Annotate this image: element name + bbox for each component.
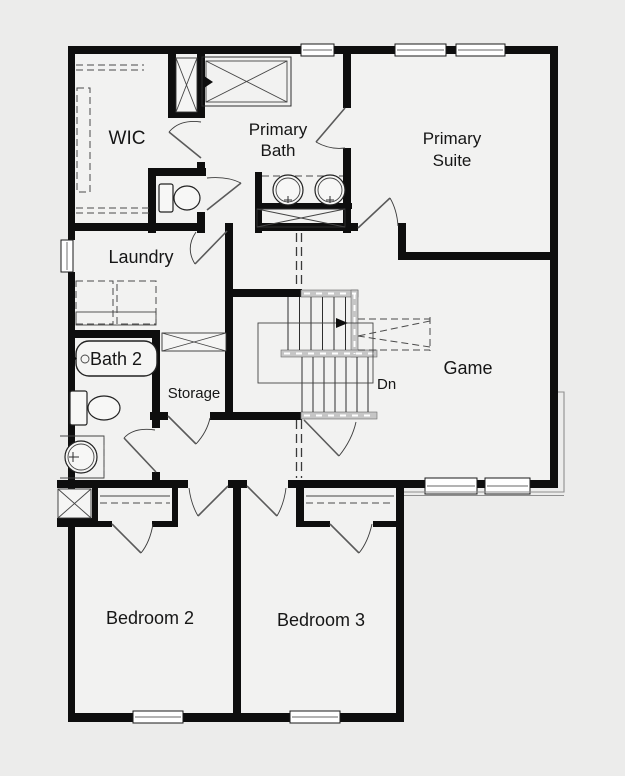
label-storage: Storage	[168, 385, 221, 402]
left-chase-icon	[58, 489, 91, 518]
label-primary-suite-2: Suite	[433, 151, 472, 170]
label-stairs-down: Dn	[377, 376, 396, 393]
label-bedroom3: Bedroom 3	[277, 610, 365, 630]
window	[133, 711, 183, 723]
label-game: Game	[443, 358, 492, 378]
label-bath2: Bath 2	[90, 349, 142, 369]
label-wic: WIC	[109, 128, 146, 149]
hall-chase-icon	[162, 333, 226, 351]
label-bedroom2: Bedroom 2	[106, 608, 194, 628]
linen-chase-icon	[176, 58, 197, 112]
floor-plan-drawing: WIC Primary Bath Primary Suite Laundry B…	[0, 0, 625, 776]
toilet-icon	[159, 184, 200, 212]
sink-icon	[273, 175, 303, 205]
window	[395, 44, 446, 56]
label-laundry: Laundry	[108, 247, 173, 267]
label-primary-bath-1: Primary	[249, 120, 308, 139]
sink-icon	[315, 175, 345, 205]
label-primary-suite-1: Primary	[423, 129, 482, 148]
window	[61, 240, 73, 272]
window	[301, 44, 334, 56]
floor-plan: WIC Primary Bath Primary Suite Laundry B…	[0, 0, 625, 776]
label-primary-bath-2: Bath	[261, 141, 296, 160]
window	[456, 44, 505, 56]
window	[290, 711, 340, 723]
